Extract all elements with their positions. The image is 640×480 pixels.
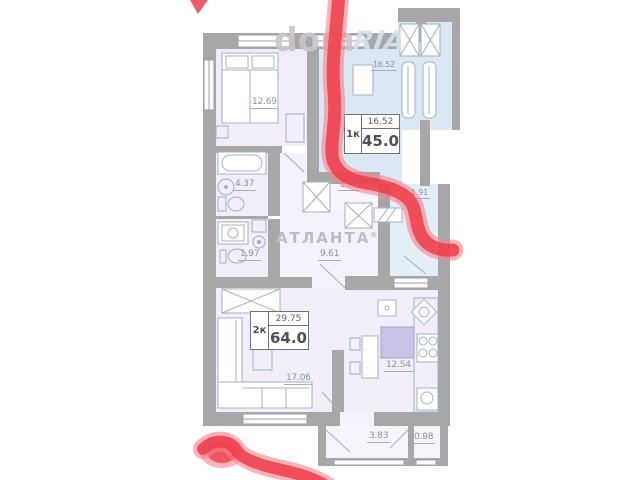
room-label-balcony-small: 0.98 <box>412 432 435 444</box>
room-label-hallway: 9.61 <box>318 249 341 261</box>
watermark-dom: dom <box>274 20 355 59</box>
floor-plan-canvas: dom RIA АТЛАНТА® 12.69 16.52 4.37 1.97 9… <box>0 0 640 480</box>
room-label-living-room: 17.06 <box>284 373 313 385</box>
apartment-box-1k: 1к 16.52 45.0 <box>344 114 400 154</box>
apartment-box-2k: 2к 29.75 64.0 <box>250 311 309 350</box>
room-label-wc: 1.97 <box>238 249 261 261</box>
watermark-atlanta: АТЛАНТА® <box>276 229 377 247</box>
room-label-entry-1k: 1.91 <box>409 188 430 199</box>
room-label-room-1k: 16.52 <box>371 60 397 71</box>
apartment-type-1k: 1к <box>345 115 362 153</box>
apartment-living-area-1k: 16.52 <box>362 115 399 129</box>
watermark-ria: RIA <box>351 26 407 57</box>
room-label-bathroom: 4.37 <box>233 179 256 191</box>
registered-mark: ® <box>370 231 377 239</box>
room-label-bedroom: 12.69 <box>250 97 279 109</box>
room-label-hall-1k: 1.77 <box>338 180 359 191</box>
apartment-living-area-2k: 29.75 <box>269 312 308 326</box>
room-label-balcony: 3.83 <box>367 431 390 443</box>
room-label-kitchen: 12.54 <box>384 360 413 372</box>
apartment-type-2k: 2к <box>251 312 269 349</box>
apartment-total-area-1k: 45.0 <box>362 129 399 153</box>
apartment-total-area-2k: 64.0 <box>269 326 308 349</box>
